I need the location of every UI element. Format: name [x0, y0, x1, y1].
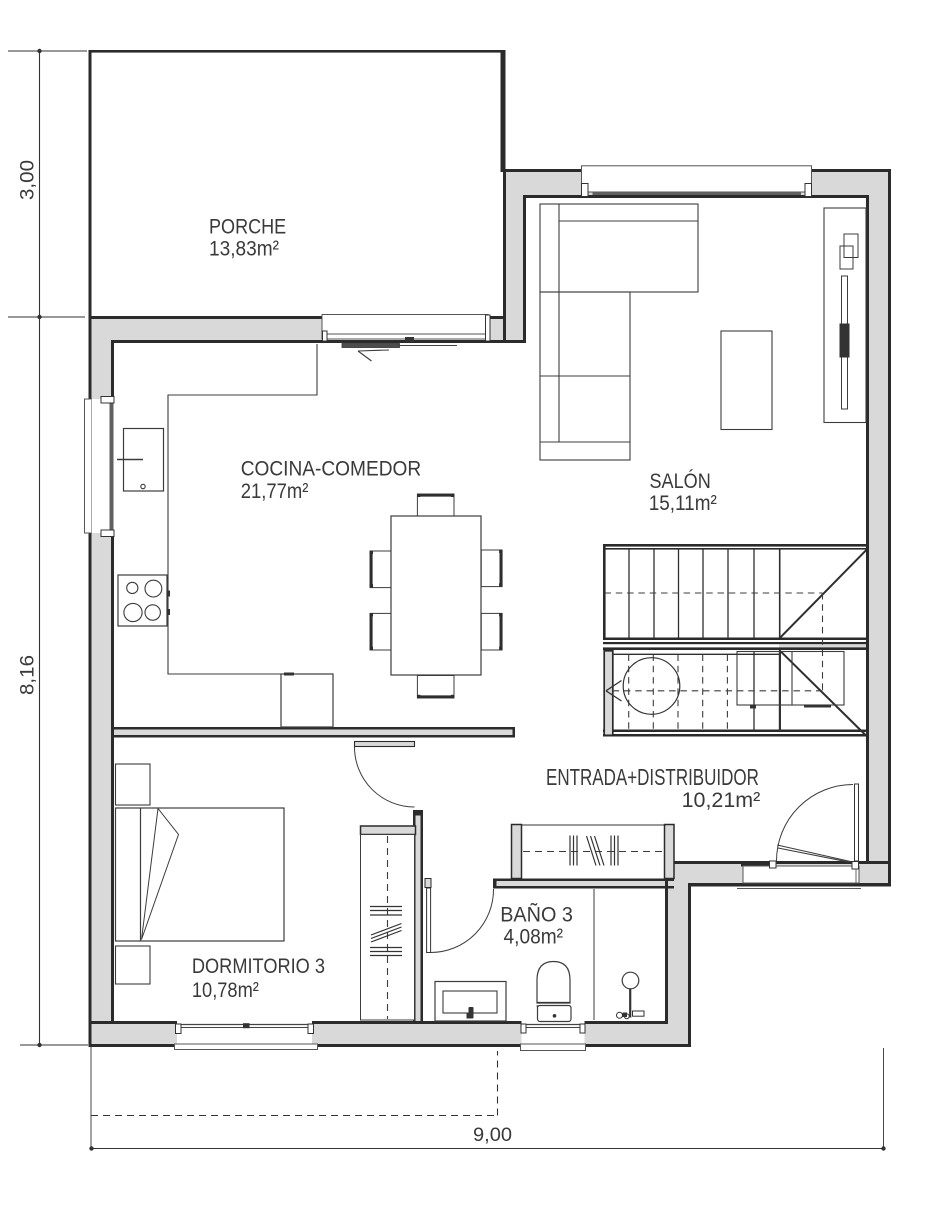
- svg-text:ENTRADA+DISTRIBUIDOR: ENTRADA+DISTRIBUIDOR: [546, 764, 759, 790]
- svg-text:DORMITORIO 3: DORMITORIO 3: [192, 955, 325, 978]
- svg-text:10,21m²: 10,21m²: [682, 789, 761, 812]
- svg-text:15,11m²: 15,11m²: [649, 492, 717, 515]
- svg-text:BAÑO 3: BAÑO 3: [500, 902, 573, 926]
- svg-text:SALÓN: SALÓN: [650, 470, 711, 493]
- svg-text:PORCHE: PORCHE: [209, 216, 286, 239]
- svg-text:8,16: 8,16: [18, 655, 39, 695]
- svg-text:3,00: 3,00: [18, 160, 39, 200]
- svg-text:21,77m²: 21,77m²: [241, 480, 309, 503]
- svg-text:10,78m²: 10,78m²: [192, 979, 259, 1002]
- svg-text:COCINA-COMEDOR: COCINA-COMEDOR: [241, 458, 422, 481]
- svg-text:13,83m²: 13,83m²: [209, 237, 279, 260]
- svg-text:9,00: 9,00: [473, 1125, 512, 1146]
- svg-text:4,08m²: 4,08m²: [504, 926, 564, 949]
